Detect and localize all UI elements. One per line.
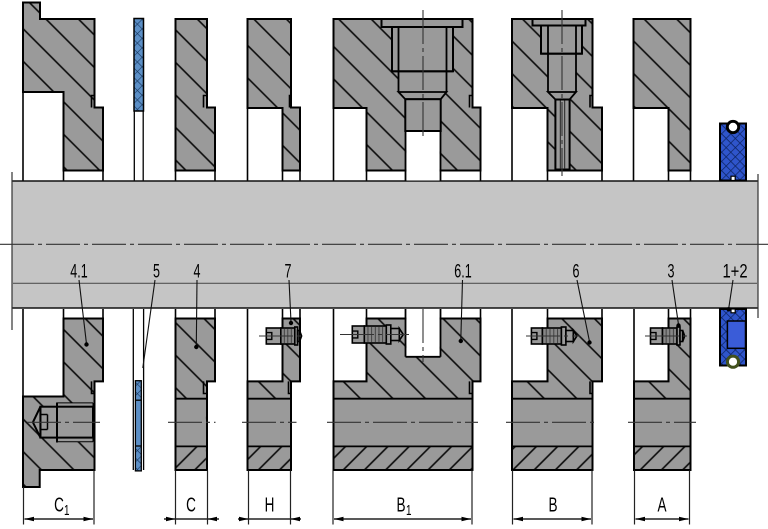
svg-text:6: 6 <box>573 261 580 282</box>
svg-text:7: 7 <box>285 261 292 282</box>
svg-text:H: H <box>265 493 275 517</box>
svg-text:5: 5 <box>153 261 160 282</box>
svg-text:4: 4 <box>194 261 201 282</box>
svg-text:1: 1 <box>406 502 412 519</box>
svg-text:B: B <box>396 493 405 517</box>
svg-text:3: 3 <box>668 261 675 282</box>
svg-text:C: C <box>186 493 196 517</box>
svg-text:B: B <box>548 493 557 517</box>
svg-text:C: C <box>54 493 64 517</box>
svg-text:1+2: 1+2 <box>722 261 747 282</box>
svg-text:4.1: 4.1 <box>70 261 87 282</box>
svg-text:A: A <box>657 493 666 517</box>
svg-text:1: 1 <box>64 502 70 519</box>
svg-text:6.1: 6.1 <box>454 261 471 282</box>
